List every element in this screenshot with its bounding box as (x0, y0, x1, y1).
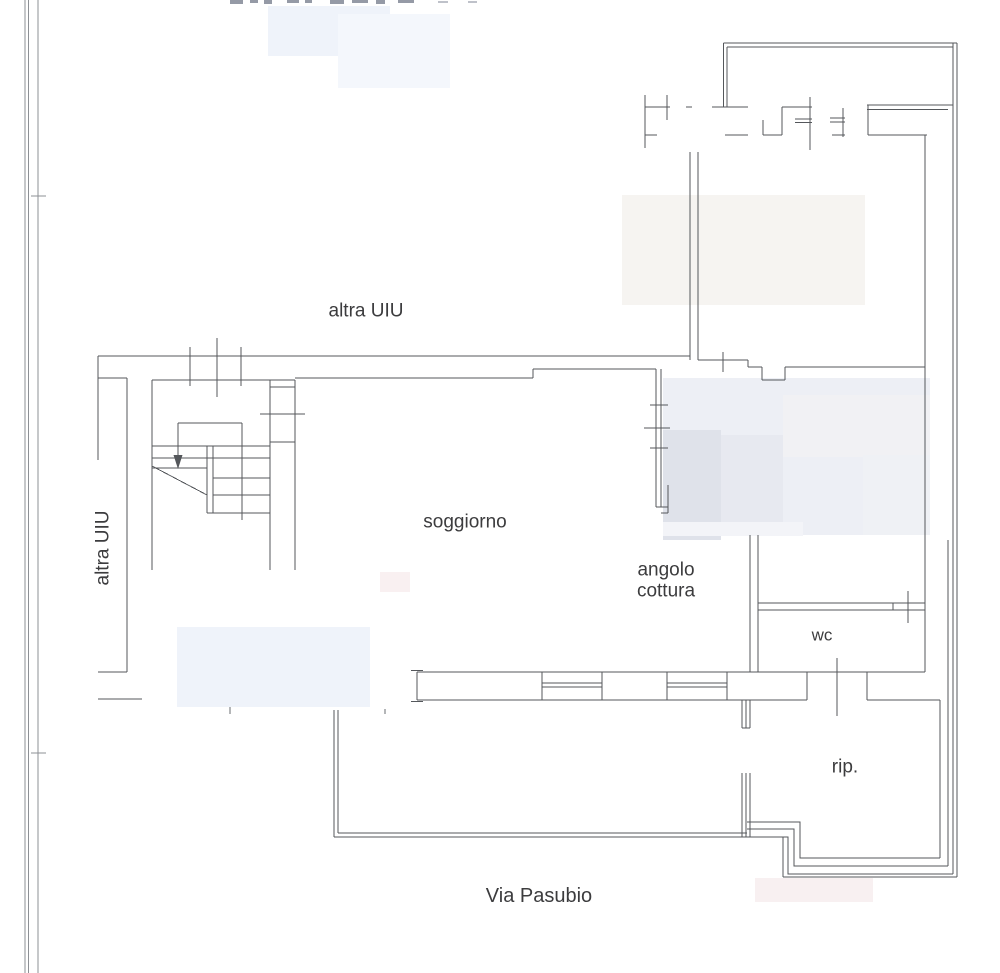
redacted-title-marks (230, 0, 477, 4)
label-kitchen-line1: angolo (637, 560, 695, 581)
redaction-blur-terrace-door (177, 627, 370, 707)
redaction-blur-small (380, 572, 410, 592)
redaction-blurs (177, 6, 930, 902)
label-kitchen: angolo cottura (637, 560, 695, 603)
floor-plan-drawing (0, 0, 1000, 973)
redaction-blur-upper-room (622, 195, 865, 305)
upper-wall (645, 95, 927, 150)
redaction-blur-bottom (755, 878, 873, 902)
floor-plan-page: altra UIU altra UIU soggiorno angolo cot… (0, 0, 1000, 973)
wc-room (750, 535, 925, 672)
redaction-blur-kitchen (663, 378, 930, 540)
label-storage: rip. (832, 756, 858, 777)
label-toilet: wc (812, 625, 833, 644)
staircase (152, 380, 305, 570)
north-wall (98, 338, 690, 397)
label-other-unit-left: altra UIU (92, 511, 113, 586)
redaction-blur-top-title-2 (338, 14, 450, 88)
stair-direction-arrow (174, 455, 183, 469)
label-other-unit-top: altra UIU (329, 300, 404, 321)
label-living-room: soggiorno (423, 511, 506, 532)
label-kitchen-line2: cottura (637, 581, 695, 602)
terrace (334, 700, 750, 837)
page-border (25, 0, 46, 973)
label-street: Via Pasubio (486, 885, 592, 907)
